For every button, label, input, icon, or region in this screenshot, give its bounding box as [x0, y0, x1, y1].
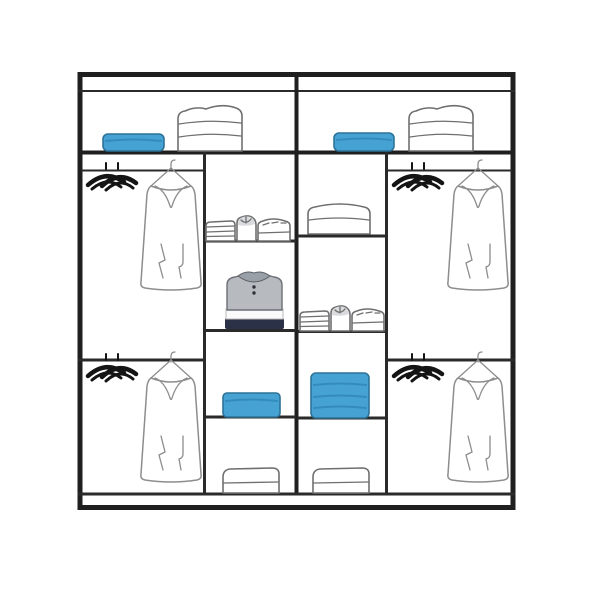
- folded-duvet: [308, 204, 370, 234]
- garment-on-hanger-bottom-left: [141, 352, 201, 482]
- blue-storage-box-short: [223, 393, 280, 417]
- black-hangers-bottom-left: [88, 354, 136, 381]
- folded-towel-group-center-left: [206, 216, 290, 241]
- linen-stack-top-left: [178, 106, 242, 151]
- garment-on-hanger-top-right: [448, 160, 508, 290]
- folded-towel-group-center-right: [300, 306, 384, 331]
- black-hangers-bottom-right: [394, 354, 442, 381]
- blue-storage-box-top-right: [334, 133, 394, 151]
- folded-polo-shirt: [225, 272, 284, 329]
- garment-on-hanger-bottom-right: [448, 352, 508, 482]
- black-hangers-top-right: [394, 163, 442, 190]
- blue-storage-box-tall: [311, 373, 369, 418]
- wardrobe-diagram: [0, 0, 600, 600]
- blue-storage-box-top-left: [103, 134, 164, 151]
- folded-item-bottom-center-right: [313, 468, 369, 493]
- black-hangers-top-left: [88, 163, 136, 190]
- folded-item-bottom-center-left: [223, 468, 279, 493]
- garment-on-hanger-top-left: [141, 160, 201, 290]
- linen-stack-top-right: [409, 106, 473, 151]
